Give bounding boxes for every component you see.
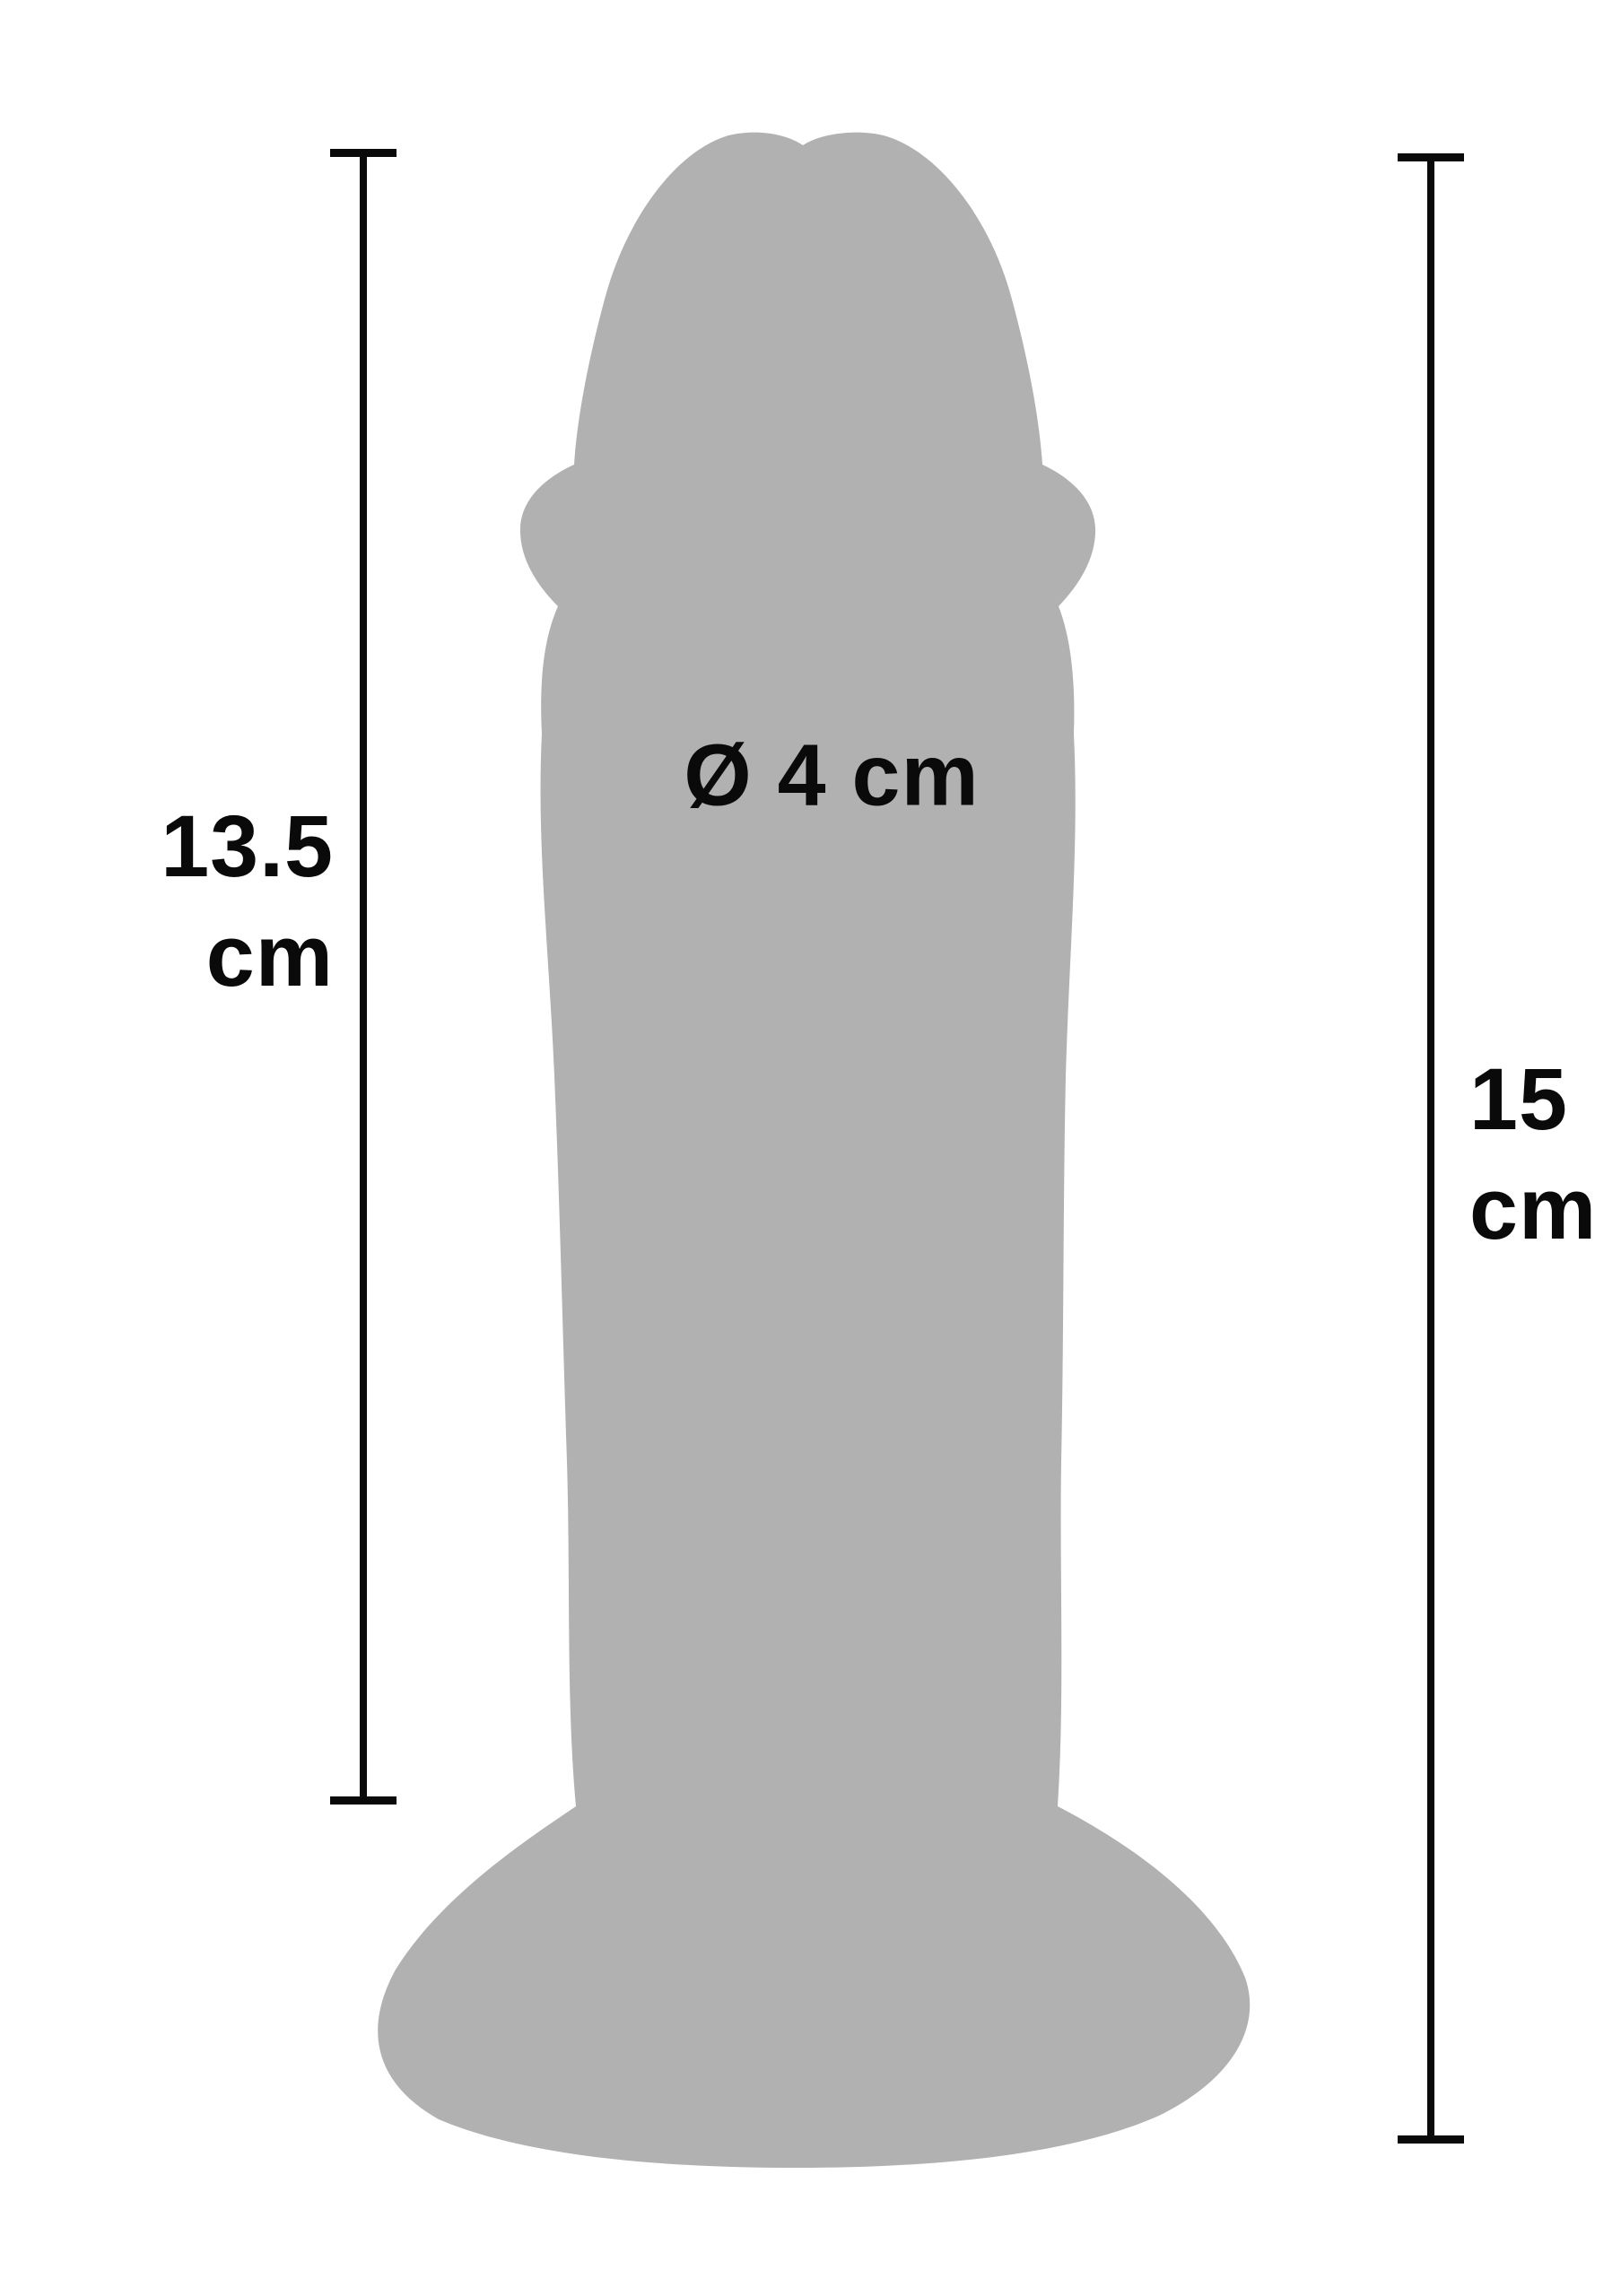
- total-length-unit: cm: [1469, 1154, 1597, 1264]
- product-silhouette: [0, 0, 1621, 2296]
- right-dimension-cap-top: [1398, 153, 1464, 161]
- insertable-length-value: 13.5: [161, 792, 334, 901]
- insertable-length-label: 13.5 cm: [161, 792, 334, 1011]
- right-dimension-cap-bottom: [1398, 2135, 1464, 2144]
- left-dimension-cap-top: [330, 149, 397, 157]
- diagram-canvas: 13.5 cm 15 cm Ø 4 cm: [0, 0, 1621, 2296]
- total-length-value: 15: [1469, 1045, 1597, 1154]
- left-dimension-cap-bottom: [330, 1796, 397, 1805]
- diameter-label: Ø 4 cm: [684, 732, 980, 819]
- total-length-label: 15 cm: [1469, 1045, 1597, 1264]
- right-dimension-line: [1427, 157, 1434, 2140]
- left-dimension-line: [360, 152, 367, 1801]
- silhouette-shape: [378, 133, 1250, 2168]
- insertable-length-unit: cm: [161, 901, 334, 1011]
